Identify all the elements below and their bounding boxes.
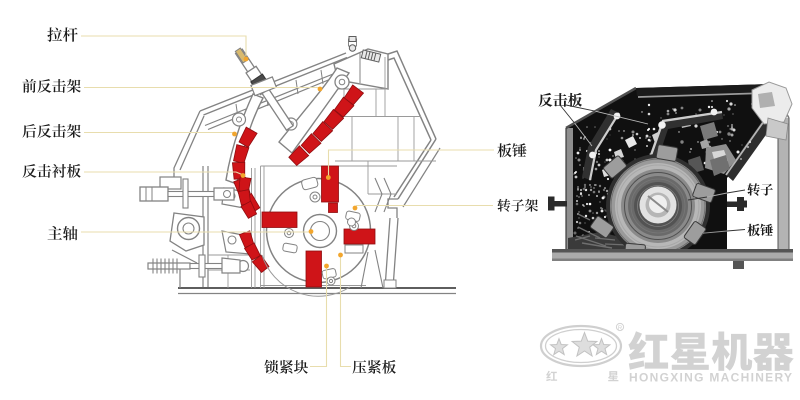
svg-text:HONGXING MACHINERY: HONGXING MACHINERY bbox=[629, 371, 793, 385]
svg-text:R: R bbox=[618, 326, 623, 332]
